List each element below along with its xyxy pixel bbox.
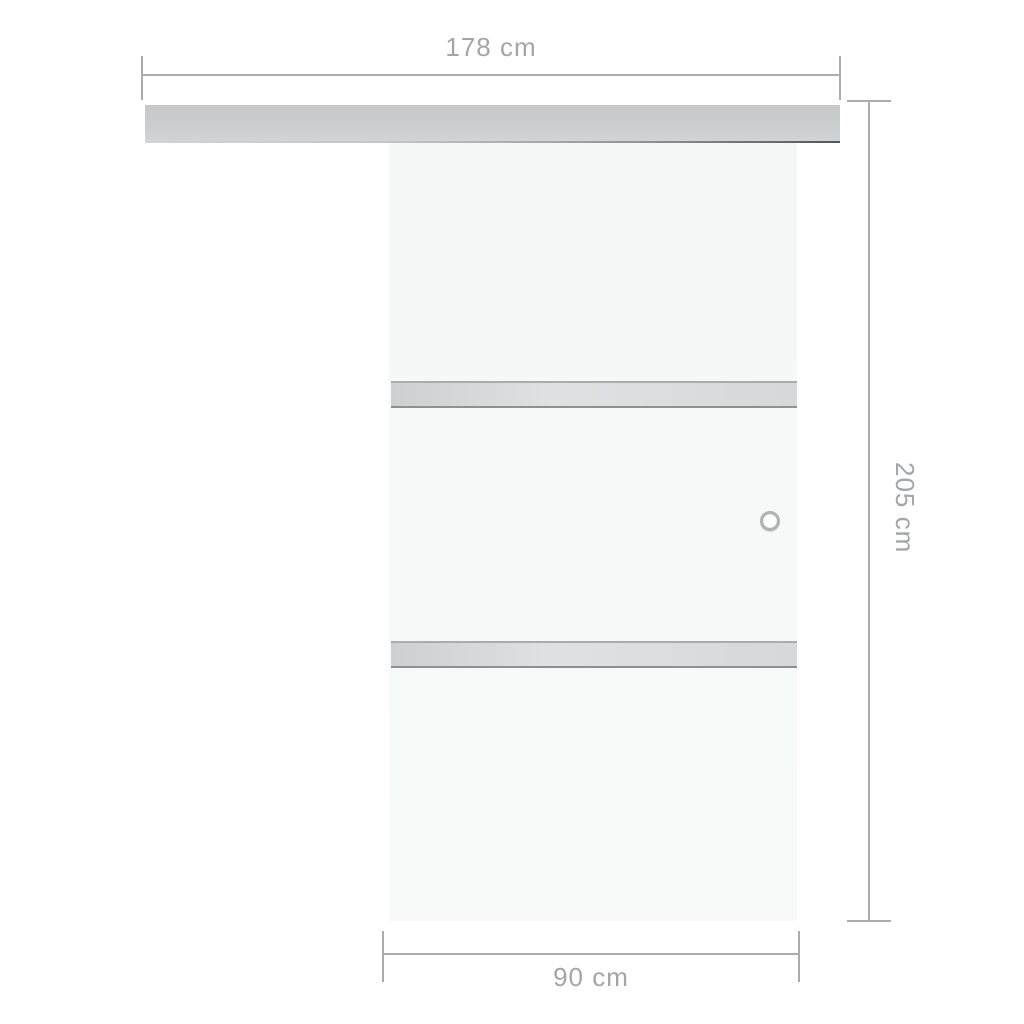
door-stripe-upper [391,381,797,408]
door-width-dimension-line [382,953,800,955]
door-height-dimension-line [868,100,870,922]
track-width-dimension-line [142,74,840,76]
track-width-dimension-label: 178 cm [142,32,840,63]
sliding-track-rail [145,105,840,143]
track-width-dimension-tick-left [141,56,143,100]
door-height-dimension-label: 205 cm [889,462,920,553]
door-height-dimension-tick-bottom [847,920,891,922]
door-handle-icon [760,511,780,531]
glass-door-panel [389,143,797,921]
dimension-diagram: 178 cm 205 cm 90 cm [0,0,1024,1024]
door-width-dimension-label: 90 cm [382,962,800,993]
door-stripe-lower [391,641,797,668]
track-width-dimension-tick-right [839,56,841,100]
